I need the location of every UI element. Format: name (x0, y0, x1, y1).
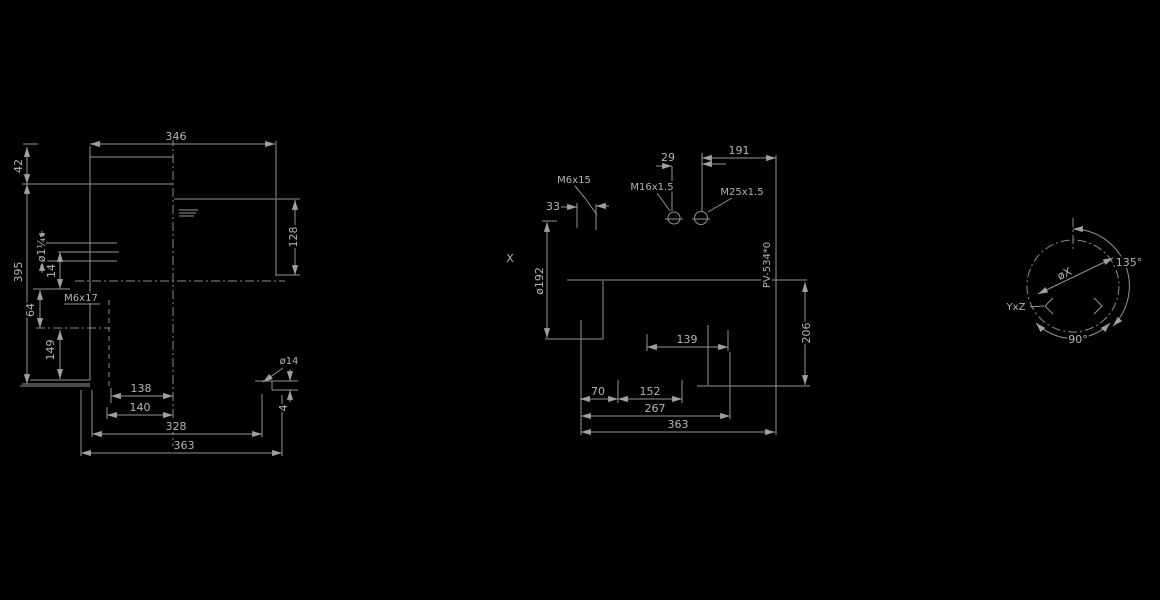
front-view-dimensions: 29 191 M6x15 M16x1.5 M25x1.5 33 X ø192 P… (506, 144, 813, 432)
front-view-outline (545, 155, 810, 435)
thread-label-m6x15: M6x15 (557, 175, 591, 186)
hole-mark-left (1045, 298, 1053, 314)
dim-363-side: 363 (174, 439, 195, 452)
port-x-label: X (506, 252, 514, 265)
hole-mark-right (1094, 298, 1102, 314)
port-thread-label: ø1¼ (35, 237, 48, 262)
hole-dia14-label: ø14 (280, 356, 299, 367)
dim-267: 267 (645, 402, 666, 415)
dim-14: 14 (45, 264, 58, 278)
port-m25 (692, 212, 710, 225)
dim-346: 346 (166, 130, 187, 143)
dim-128: 128 (287, 227, 300, 248)
part-number: PV-534*0 (762, 242, 773, 288)
dim-395: 395 (12, 262, 25, 283)
angle-135-label: 135° (1116, 256, 1143, 269)
dim-29: 29 (661, 151, 675, 164)
dim-70: 70 (591, 385, 605, 398)
thread-label-m25: M25x1.5 (720, 187, 763, 198)
holes-spec-label: YxZ (1006, 302, 1026, 313)
dim-64: 64 (24, 303, 37, 317)
dim-206: 206 (800, 323, 813, 344)
bolt-circle-dia-label: øX (1055, 265, 1074, 283)
pump-dimension-drawing: 346 42 395 128 ø1¼ 14 M6x17 64 149 138 (0, 0, 1160, 600)
bolt-circle (1027, 240, 1119, 332)
side-view-dimensions: 346 42 395 128 ø1¼ 14 M6x17 64 149 138 (12, 130, 300, 456)
port-m16 (665, 212, 683, 224)
thread-label-m6x17: M6x17 (64, 293, 98, 304)
angle-arc-135 (1073, 229, 1129, 326)
bolt-circle-diameter-line (1038, 258, 1113, 294)
technical-drawing-canvas: 346 42 395 128 ø1¼ 14 M6x17 64 149 138 (0, 0, 1160, 600)
vent-hatch (179, 210, 198, 216)
flange-view: 135° 90° øX YxZ (1006, 218, 1143, 346)
front-view: 29 191 M6x15 M16x1.5 M25x1.5 33 X ø192 P… (506, 144, 813, 435)
dim-33: 33 (546, 200, 560, 213)
dim-4: 4 (277, 405, 290, 412)
dim-191: 191 (729, 144, 750, 157)
side-view: 346 42 395 128 ø1¼ 14 M6x17 64 149 138 (12, 130, 300, 456)
dim-152: 152 (640, 385, 661, 398)
dim-42: 42 (12, 159, 25, 173)
angle-90-label: 90° (1068, 333, 1088, 346)
thread-label-m16: M16x1.5 (630, 182, 673, 193)
dim-140: 140 (130, 401, 151, 414)
dim-138: 138 (131, 382, 152, 395)
suction-port (40, 243, 119, 261)
dim-149: 149 (44, 340, 57, 361)
dim-328: 328 (166, 420, 187, 433)
dim-363-front: 363 (668, 418, 689, 431)
dim-139: 139 (677, 333, 698, 346)
dim-dia192: ø192 (533, 267, 546, 295)
